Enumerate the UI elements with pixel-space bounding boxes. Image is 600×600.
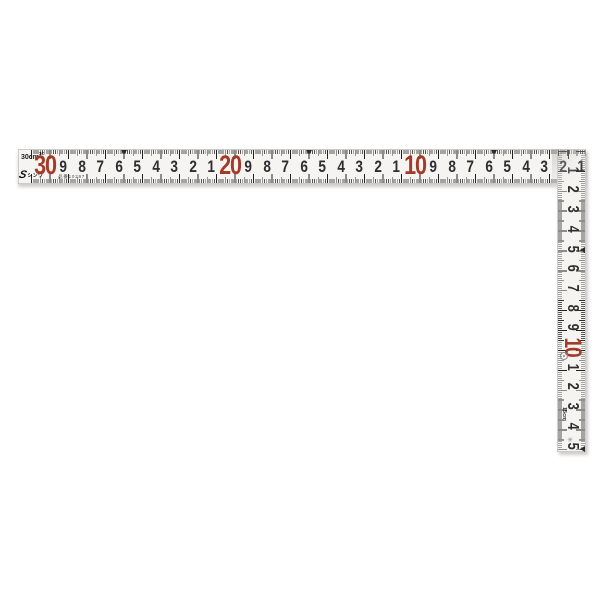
v-scale-number-14cm: 4 xyxy=(563,422,581,429)
vertical-length-label: 15cm xyxy=(561,407,567,421)
vertical-right-mm-ticks xyxy=(581,151,585,450)
v-scale-number-8cm: 8 xyxy=(563,304,581,311)
v-scale-number-15cm: 5 xyxy=(563,442,581,449)
h-triangle-marks xyxy=(18,149,586,184)
v-triangle-mark-15cm xyxy=(580,446,585,452)
horizontal-bottom-halfcm-ticks xyxy=(31,177,586,184)
horizontal-top-mm-ticks xyxy=(31,150,586,154)
model-number: 品番10297 xyxy=(58,174,85,180)
vertical-left-halfcm-ticks xyxy=(558,151,565,450)
scale-length-label: 30cm1C xyxy=(21,151,45,161)
horizontal-top-halfcm-ticks xyxy=(31,150,586,157)
scale-length-sup: 1C xyxy=(39,151,45,156)
jis-circle-stamp-icon xyxy=(560,352,568,360)
v-scale-number-9cm: 9 xyxy=(563,324,581,331)
horizontal-bottom-mm-ticks xyxy=(31,179,586,183)
product-photo: 30cm1C S シンワ 品番10297 3098765432120987654… xyxy=(0,0,600,600)
v-scale-number-5cm: 5 xyxy=(563,245,581,252)
maker-stamp-icon: ✳ xyxy=(565,437,572,443)
v-scale-number-2cm: 2 xyxy=(563,186,581,193)
micro-stamp-text: ····· xyxy=(554,361,558,372)
shinwa-s-mark-icon: S xyxy=(18,170,28,181)
corner-top-halfcm-ticks xyxy=(558,150,586,157)
corner-top-mm-ticks xyxy=(558,150,586,154)
v-scale-number-3cm: 3 xyxy=(563,206,581,213)
h-triangle-mark-15cm xyxy=(306,150,312,155)
v-scale-number-4cm: 4 xyxy=(563,225,581,232)
h-triangle-mark-25cm xyxy=(121,150,127,155)
v-scale-number-7cm: 7 xyxy=(563,285,581,292)
v-scale-number-1cm: 1 xyxy=(563,166,581,173)
v-triangle-mark-5cm xyxy=(580,247,585,253)
vertical-right-halfcm-ticks xyxy=(579,151,586,450)
square-vertical-arm: 1234567891012345 15cm ····· ✳ xyxy=(557,149,586,452)
vertical-right-cm-ticks xyxy=(576,151,585,450)
h-triangle-mark-5cm xyxy=(491,150,497,155)
brand-logo-text: シンワ xyxy=(27,172,43,179)
square-horizontal-arm: 30cm1C S シンワ 品番10297 xyxy=(18,149,586,184)
vertical-left-mm-ticks xyxy=(558,151,562,450)
v-scale-number-12cm: 2 xyxy=(563,383,581,390)
horizontal-top-cm-ticks xyxy=(31,150,586,159)
vertical-left-cm-ticks xyxy=(558,151,567,450)
horizontal-bottom-cm-ticks xyxy=(31,174,586,183)
v-scale-number-6cm: 6 xyxy=(563,265,581,272)
scale-length-text: 30cm xyxy=(21,154,39,161)
brand-logo: S シンワ xyxy=(19,170,43,181)
corner-top-cm-ticks xyxy=(568,150,587,159)
v-scale-number-11cm: 1 xyxy=(563,363,581,370)
